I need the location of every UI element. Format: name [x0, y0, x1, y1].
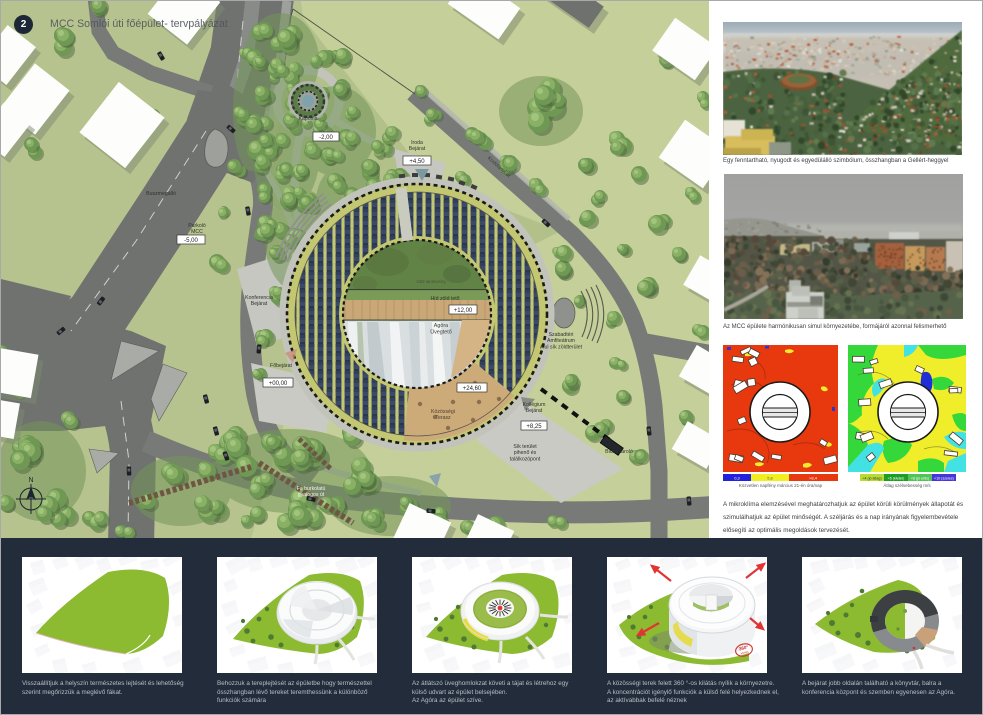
- svg-text:-2,00: -2,00: [319, 135, 333, 141]
- svg-text:N: N: [28, 477, 33, 484]
- svg-text:+8,25: +8,25: [526, 424, 542, 430]
- svg-text:+00,00: +00,00: [269, 381, 288, 387]
- svg-text:-5,00: -5,00: [184, 238, 198, 244]
- svg-text:KollégiumBejárat: KollégiumBejárat: [523, 402, 546, 414]
- svg-text:<10 (szeles): <10 (szeles): [934, 477, 954, 481]
- svg-text:<6 (kiváló): <6 (kiváló): [888, 477, 905, 481]
- svg-text:+12,00: +12,00: [454, 308, 473, 314]
- svg-text:Sík területpihenő éstalálkozóp: Sík területpihenő éstalálkozópont: [510, 444, 541, 462]
- svg-text:<4 (jó átlag): <4 (jó átlag): [862, 477, 881, 481]
- svg-text:Bicikli tároló: Bicikli tároló: [605, 449, 633, 455]
- svg-text:Fa burkolatúgyalogos út: Fa burkolatúgyalogos út: [297, 486, 326, 498]
- svg-text:zöld tanösvény: zöld tanösvény: [416, 279, 446, 284]
- svg-text:5,8: 5,8: [767, 476, 773, 481]
- svg-text:Buszmegálló: Buszmegálló: [146, 191, 176, 197]
- svg-text:+4,50: +4,50: [409, 159, 425, 165]
- svg-text:>8,4: >8,4: [809, 476, 818, 481]
- svg-text:Főbejárat: Főbejárat: [270, 363, 292, 369]
- svg-text:+24,60: +24,60: [463, 386, 482, 392]
- svg-text:Kápolna: Kápolna: [298, 116, 317, 122]
- svg-text:<8 (jó erős): <8 (jó erős): [911, 477, 929, 481]
- svg-text:Híd zöld tető: Híd zöld tető: [430, 296, 459, 302]
- svg-text:0,3: 0,3: [734, 476, 740, 481]
